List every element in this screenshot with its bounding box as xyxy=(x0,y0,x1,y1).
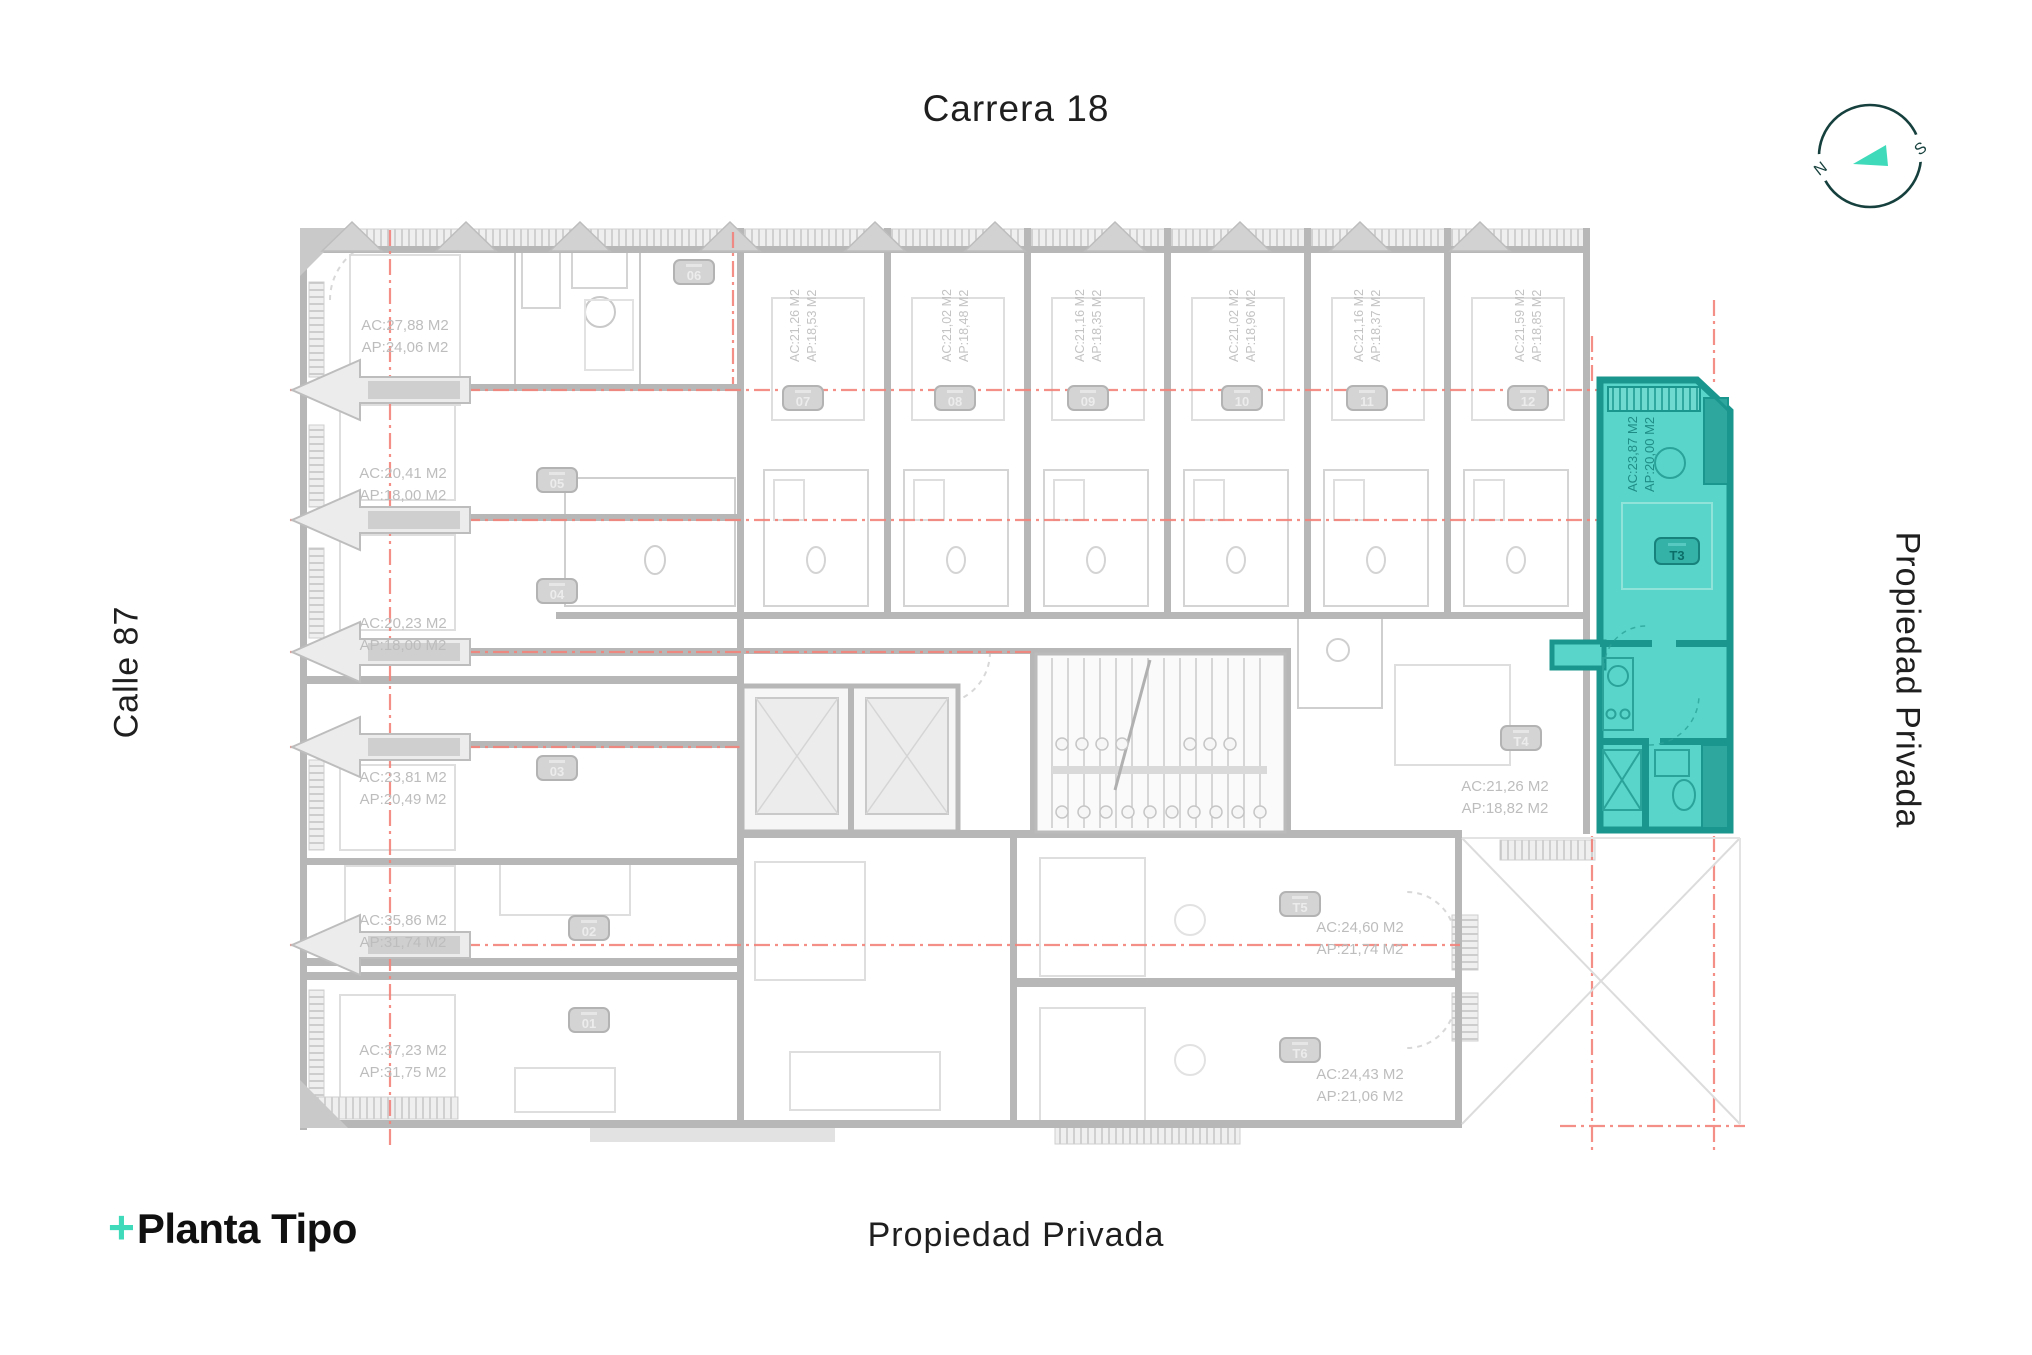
unit-badge-11[interactable]: 11 xyxy=(1347,386,1387,410)
unit-area-ap: AP:20,00 M2 xyxy=(1642,417,1657,492)
unit-badge-01[interactable]: 01 xyxy=(569,1008,609,1032)
area-label-01-ap: AP:31,75 M2 xyxy=(360,1064,447,1081)
unit-badge-02[interactable]: 02 xyxy=(569,916,609,940)
area-label-t5-ac: AC:24,60 M2 xyxy=(1316,919,1404,936)
unit-badge-06[interactable]: 06 xyxy=(674,260,714,284)
area-label-t6-ap: AP:21,06 M2 xyxy=(1317,1088,1404,1105)
area-label-04-ac: AC:20,23 M2 xyxy=(359,615,447,632)
svg-text:10: 10 xyxy=(1235,394,1249,409)
unit-badge-05[interactable]: 05 xyxy=(537,468,577,492)
unit-badge-t3[interactable]: T3 xyxy=(1655,538,1699,564)
area-label-05-ap: AP:18,00 M2 xyxy=(360,487,447,504)
area-label-03-ap: AP:20,49 M2 xyxy=(360,791,447,808)
svg-text:09: 09 xyxy=(1081,394,1095,409)
grid-lines xyxy=(290,230,1745,1150)
unit-badge-08[interactable]: 08 xyxy=(935,386,975,410)
unit-badge-10[interactable]: 10 xyxy=(1222,386,1262,410)
area-label-08-ap: AP:18,48 M2 xyxy=(957,290,971,362)
area-label-10-ac: AC:21,02 M2 xyxy=(1227,289,1241,362)
svg-text:T6: T6 xyxy=(1292,1046,1307,1061)
svg-text:T4: T4 xyxy=(1513,734,1529,749)
area-label-t5-ap: AP:21,74 M2 xyxy=(1317,941,1404,958)
floor-plan: AC:23,87 M2 AP:20,00 M2 T3 01 02 03 04 0… xyxy=(0,0,2032,1355)
unit-badge-t4[interactable]: T4 xyxy=(1501,726,1541,750)
svg-text:03: 03 xyxy=(550,764,564,779)
area-label-t4-ap: AP:18,82 M2 xyxy=(1462,800,1549,817)
area-label-09-ac: AC:21,16 M2 xyxy=(1073,289,1087,362)
private-area-cross xyxy=(1462,838,1740,1124)
elevators xyxy=(742,686,958,832)
svg-text:05: 05 xyxy=(550,476,564,491)
stairs xyxy=(1036,654,1285,832)
svg-text:04: 04 xyxy=(550,587,565,602)
closet xyxy=(1704,398,1728,484)
area-label-11-ap: AP:18,37 M2 xyxy=(1369,290,1383,362)
area-label-03-ac: AC:23,81 M2 xyxy=(359,769,447,786)
unit-badge-label: T3 xyxy=(1669,548,1684,563)
page: { "colors": { "accent_teal": "#3EDAB9", … xyxy=(0,0,2032,1355)
unit-badge-t6[interactable]: T6 xyxy=(1280,1038,1320,1062)
svg-text:02: 02 xyxy=(582,924,596,939)
unit-badge-03[interactable]: 03 xyxy=(537,756,577,780)
area-label-04-ap: AP:18,00 M2 xyxy=(360,637,447,654)
area-label-10-ap: AP:18,96 M2 xyxy=(1244,290,1258,362)
unit-badge-04[interactable]: 04 xyxy=(537,579,577,603)
area-label-12-ac: AC:21,59 M2 xyxy=(1513,289,1527,362)
area-label-09-ap: AP:18,35 M2 xyxy=(1090,290,1104,362)
area-label-t4-ac: AC:21,26 M2 xyxy=(1461,778,1549,795)
unit-badge-t5[interactable]: T5 xyxy=(1280,892,1320,916)
walls xyxy=(300,228,1590,1130)
area-label-01-ac: AC:37,23 M2 xyxy=(359,1042,447,1059)
area-label-11-ac: AC:21,16 M2 xyxy=(1352,289,1366,362)
area-label-07-ac: AC:21,26 M2 xyxy=(788,289,802,362)
unit-badge-09[interactable]: 09 xyxy=(1068,386,1108,410)
area-label-05-ac: AC:20,41 M2 xyxy=(359,465,447,482)
area-label-06-ac: AC:27,88 M2 xyxy=(361,317,449,334)
unit-area-ac: AC:23,87 M2 xyxy=(1625,416,1640,492)
svg-text:07: 07 xyxy=(796,394,810,409)
area-label-08-ac: AC:21,02 M2 xyxy=(940,289,954,362)
area-label-02-ap: AP:31,74 M2 xyxy=(360,934,447,951)
area-label-12-ap: AP:18,85 M2 xyxy=(1530,290,1544,362)
area-label-02-ac: AC:35,86 M2 xyxy=(359,912,447,929)
unit-badge-12[interactable]: 12 xyxy=(1508,386,1548,410)
svg-text:08: 08 xyxy=(948,394,962,409)
svg-text:11: 11 xyxy=(1360,394,1374,409)
balcony-hatch xyxy=(1608,387,1700,411)
area-label-06-ap: AP:24,06 M2 xyxy=(362,339,449,356)
unit-badge-07[interactable]: 07 xyxy=(783,386,823,410)
highlighted-unit-t3[interactable]: AC:23,87 M2 AP:20,00 M2 T3 xyxy=(1552,380,1730,830)
svg-text:01: 01 xyxy=(582,1016,596,1031)
svg-text:12: 12 xyxy=(1521,394,1535,409)
area-label-t6-ac: AC:24,43 M2 xyxy=(1316,1066,1404,1083)
area-label-07-ap: AP:18,53 M2 xyxy=(805,290,819,362)
svg-text:T5: T5 xyxy=(1292,900,1307,915)
svg-text:06: 06 xyxy=(687,268,701,283)
